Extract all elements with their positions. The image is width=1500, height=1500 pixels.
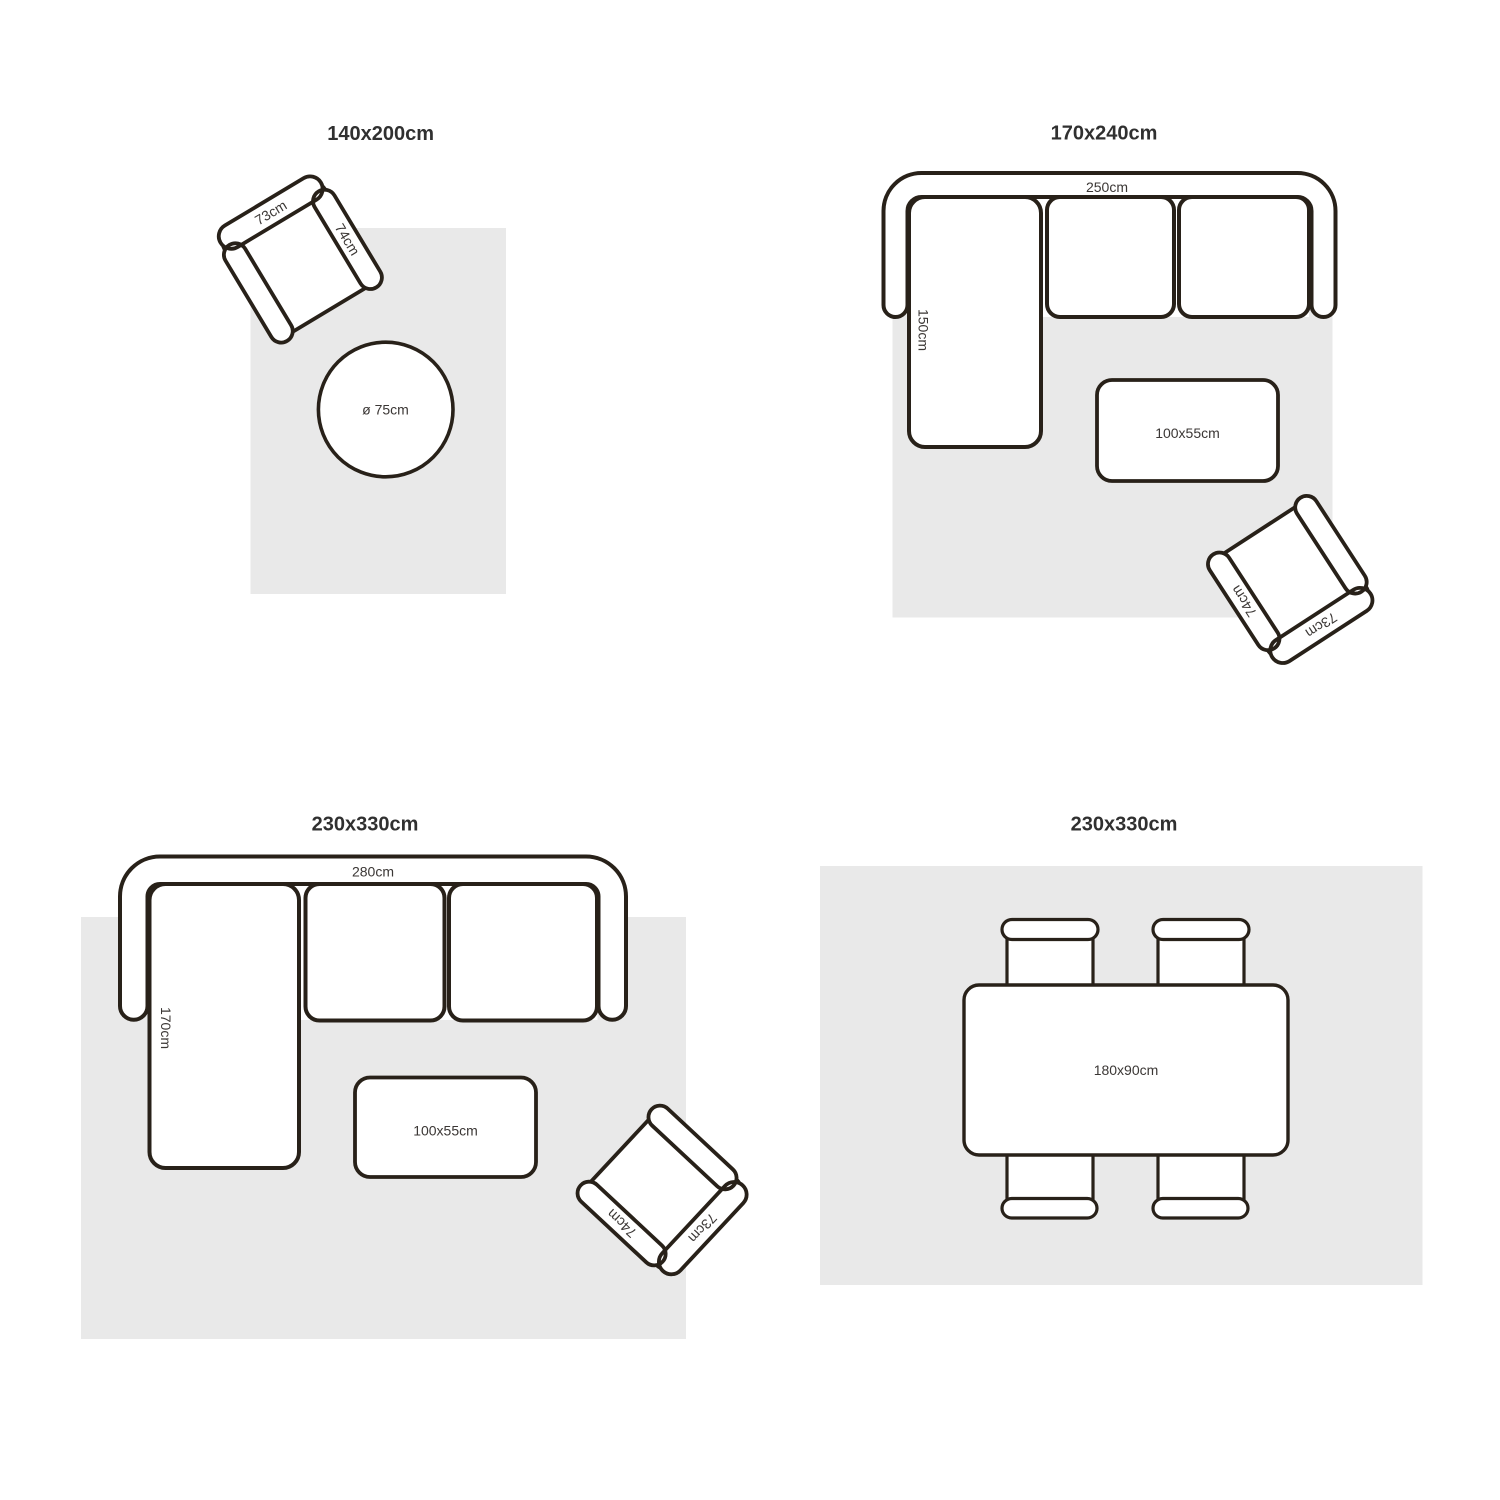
svg-text:150cm: 150cm <box>916 309 932 351</box>
svg-text:170cm: 170cm <box>158 1007 174 1049</box>
svg-text:170x240cm: 170x240cm <box>1051 123 1158 145</box>
svg-text:100x55cm: 100x55cm <box>1155 425 1220 441</box>
svg-text:230x330cm: 230x330cm <box>312 814 419 836</box>
svg-text:250cm: 250cm <box>1086 179 1128 195</box>
svg-text:100x55cm: 100x55cm <box>413 1123 478 1139</box>
svg-text:ø 75cm: ø 75cm <box>362 402 409 418</box>
svg-text:140x200cm: 140x200cm <box>327 123 434 145</box>
svg-text:180x90cm: 180x90cm <box>1094 1062 1159 1078</box>
svg-text:230x330cm: 230x330cm <box>1071 814 1178 836</box>
svg-text:280cm: 280cm <box>352 864 394 880</box>
